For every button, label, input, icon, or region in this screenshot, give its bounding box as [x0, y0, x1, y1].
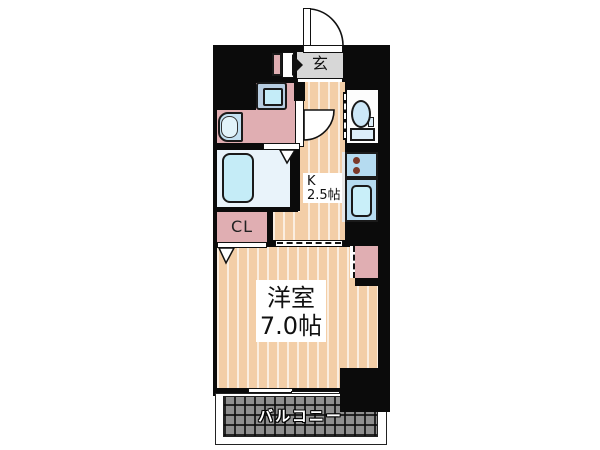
kitchen-label: K 2.5帖 [303, 173, 342, 203]
corridor-floor [273, 212, 300, 240]
wall-patch-entry [294, 82, 305, 101]
kitchen-label-line2: 2.5帖 [307, 189, 342, 203]
toilet-door-dashes [344, 94, 346, 138]
kitchen-label-line1: K [307, 175, 342, 189]
washroom-doorway [295, 100, 304, 147]
bathroom-door-v-mark-icon [279, 149, 297, 165]
kitchen-room-boundary-dashes [277, 242, 341, 244]
stove-burner-1 [353, 157, 360, 164]
floorplan-canvas: 玄 K 2.5帖 CL 洋室 7.0帖 バルコニー [0, 0, 600, 450]
balcony-label: バルコニー [233, 409, 368, 424]
wash-basin-bowl [221, 116, 238, 138]
wall-block-bottom-right [340, 368, 390, 396]
toilet-bowl [351, 100, 371, 128]
toilet-tank [350, 128, 375, 141]
bathtub [222, 153, 254, 203]
closet-label: CL [217, 219, 267, 235]
main-room-label-line1: 洋室 [256, 284, 326, 312]
main-room-label: 洋室 7.0帖 [256, 280, 326, 342]
washroom-door-swing-icon [304, 109, 337, 143]
kitchen-stove [345, 152, 378, 178]
washing-machine-drum [263, 88, 283, 106]
kitchen-sink-basin [351, 185, 372, 217]
stove-burner-2 [353, 167, 360, 174]
shoe-cabinet [272, 53, 282, 76]
kitchen-floor [298, 82, 345, 240]
closet-door-v-mark-icon [218, 247, 236, 265]
main-room-label-line2: 7.0帖 [256, 312, 326, 340]
entrance-door-swing-arc-icon [306, 8, 346, 48]
wall-patch-below-pillar [355, 278, 390, 286]
pipe-space-pillar [355, 246, 378, 278]
entrance-label: 玄 [297, 56, 343, 72]
